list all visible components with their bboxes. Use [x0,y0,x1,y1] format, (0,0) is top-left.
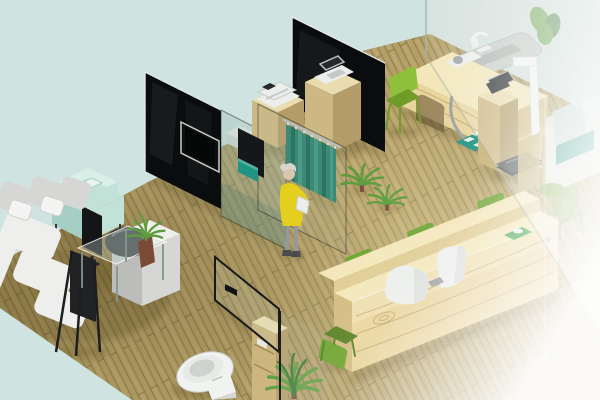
isometric-clinic-render [0,0,600,400]
scene-svg [0,0,600,400]
foreground-glass-fade [0,0,600,400]
